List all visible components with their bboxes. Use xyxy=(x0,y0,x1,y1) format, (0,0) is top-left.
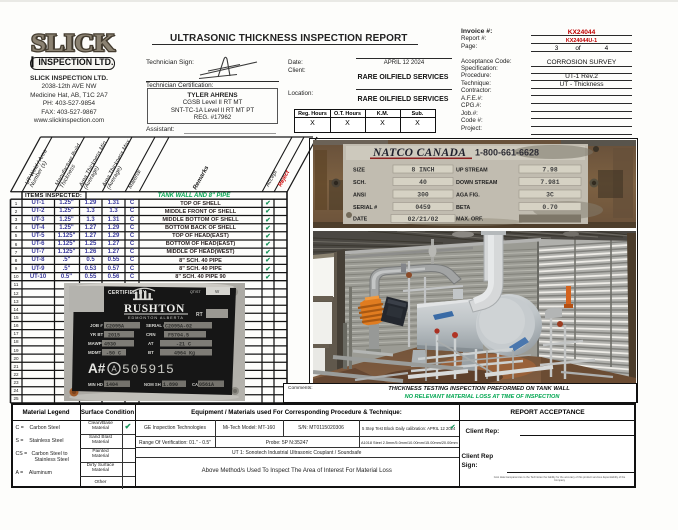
svg-text:YR BT: YR BT xyxy=(90,332,103,337)
svg-text:1-800-661-6628: 1-800-661-6628 xyxy=(475,148,539,158)
svg-text:MAX. ORF.: MAX. ORF. xyxy=(456,217,484,223)
svg-text:EDMONTON ALBERTA: EDMONTON ALBERTA xyxy=(128,316,184,320)
svg-text:300: 300 xyxy=(417,192,429,199)
svg-text:BETA: BETA xyxy=(456,205,470,211)
svg-text:RT: RT xyxy=(196,312,203,318)
svg-text:CRN: CRN xyxy=(146,332,156,337)
svg-text:2015: 2015 xyxy=(108,333,120,339)
svg-text:SCH.: SCH. xyxy=(353,180,366,186)
svg-text:0.70: 0.70 xyxy=(542,204,558,211)
svg-text:02/21/02: 02/21/02 xyxy=(408,216,439,223)
svg-text:SIZE: SIZE xyxy=(353,168,365,174)
svg-text:RUSHTON: RUSHTON xyxy=(124,303,185,315)
svg-text:NATCO CANADA: NATCO CANADA xyxy=(372,147,466,159)
svg-text:7.98: 7.98 xyxy=(542,167,558,174)
svg-text:ANSI: ANSI xyxy=(353,193,366,199)
svg-text:4930: 4930 xyxy=(104,342,116,348)
svg-text:-21 C: -21 C xyxy=(176,342,191,348)
svg-text:4964 Kg: 4964 Kg xyxy=(174,351,195,357)
svg-text:JOB #: JOB # xyxy=(90,323,103,328)
svg-text:AGA FIG.: AGA FIG. xyxy=(456,193,480,199)
svg-text:BT: BT xyxy=(148,350,154,355)
svg-text:-50 C: -50 C xyxy=(106,351,121,357)
svg-text:MAWP: MAWP xyxy=(88,341,102,346)
svg-text:C2095A-02: C2095A-02 xyxy=(165,324,192,330)
svg-text:MIN HD: MIN HD xyxy=(88,382,103,387)
svg-text:SERIAL #: SERIAL # xyxy=(353,205,377,211)
svg-text:DATE: DATE xyxy=(353,217,368,223)
svg-text:1404: 1404 xyxy=(106,382,118,388)
svg-text:C2095A: C2095A xyxy=(106,324,124,330)
svg-text:8 INCH: 8 INCH xyxy=(411,167,434,174)
svg-text:1.890: 1.890 xyxy=(163,382,178,388)
svg-text:UP STREAM: UP STREAM xyxy=(456,168,488,174)
svg-text:F5704.5: F5704.5 xyxy=(168,333,189,339)
svg-text:AT: AT xyxy=(148,341,154,346)
svg-text:7.981: 7.981 xyxy=(540,179,559,186)
svg-text:MDMT: MDMT xyxy=(88,350,101,355)
svg-text:A: A xyxy=(111,365,117,374)
svg-text:SERIAL #: SERIAL # xyxy=(146,323,166,328)
svg-text:505915: 505915 xyxy=(122,362,175,377)
svg-text:0561A: 0561A xyxy=(199,382,214,388)
svg-text:DOWN STREAM: DOWN STREAM xyxy=(456,180,498,186)
svg-text:0459: 0459 xyxy=(415,204,431,211)
svg-text:3C: 3C xyxy=(546,192,554,199)
svg-text:QT/ST: QT/ST xyxy=(190,290,201,294)
svg-text:NOM SH: NOM SH xyxy=(144,382,161,387)
svg-text:A#: A# xyxy=(88,361,106,376)
svg-text:40: 40 xyxy=(419,179,427,186)
svg-text:CA: CA xyxy=(192,382,198,387)
